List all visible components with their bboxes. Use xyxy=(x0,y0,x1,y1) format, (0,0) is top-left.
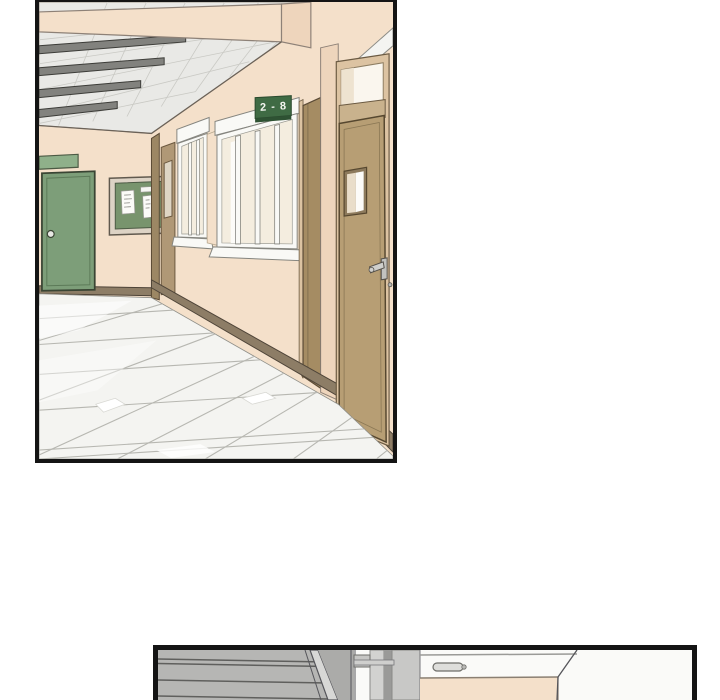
near-door-transom xyxy=(339,63,385,124)
classroom-top-partial-panel xyxy=(153,645,697,700)
door-knob xyxy=(47,231,54,238)
far-corner-door xyxy=(151,133,174,299)
edge-on-classroom-door xyxy=(299,98,321,389)
window-blinds-slats xyxy=(158,650,328,700)
hallway-illustration xyxy=(39,2,393,459)
webtoon-page: 2 - 8 xyxy=(0,0,720,700)
room-number-sign xyxy=(255,96,291,123)
beige-wall-board xyxy=(420,677,558,700)
hallway-panel: 2 - 8 xyxy=(35,0,397,463)
door-pull-handle xyxy=(433,663,466,671)
classroom-top-illustration xyxy=(158,650,692,700)
green-door xyxy=(39,154,95,290)
near-classroom-door xyxy=(336,54,392,446)
green-door-plate xyxy=(39,154,78,169)
door-stop xyxy=(388,283,392,287)
door-window xyxy=(344,167,366,216)
corner-pillar xyxy=(321,44,339,400)
